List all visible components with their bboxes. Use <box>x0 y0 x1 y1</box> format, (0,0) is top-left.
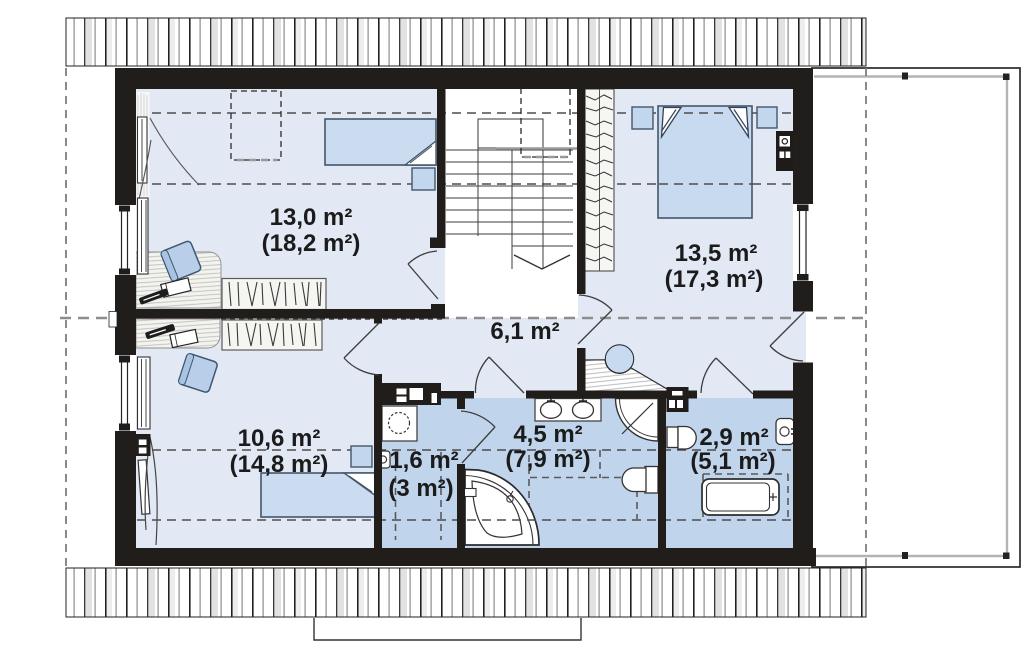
svg-text:(18,2 m²): (18,2 m²) <box>262 230 361 257</box>
svg-text:1,6 m²: 1,6 m² <box>389 447 458 474</box>
svg-text:(7,9 m²): (7,9 m²) <box>505 446 590 473</box>
svg-text:6,1 m²: 6,1 m² <box>490 318 559 345</box>
svg-text:4,5 m²: 4,5 m² <box>513 421 582 448</box>
svg-text:13,5 m²: 13,5 m² <box>675 240 758 267</box>
svg-text:(3 m²): (3 m²) <box>388 475 453 502</box>
svg-text:2,9 m²: 2,9 m² <box>699 424 768 451</box>
svg-text:(14,8 m²): (14,8 m²) <box>230 451 329 478</box>
svg-text:(17,3 m²): (17,3 m²) <box>665 266 764 293</box>
svg-text:13,0 m²: 13,0 m² <box>270 204 353 231</box>
svg-text:(5,1 m²): (5,1 m²) <box>690 448 775 475</box>
svg-text:10,6 m²: 10,6 m² <box>238 425 321 452</box>
